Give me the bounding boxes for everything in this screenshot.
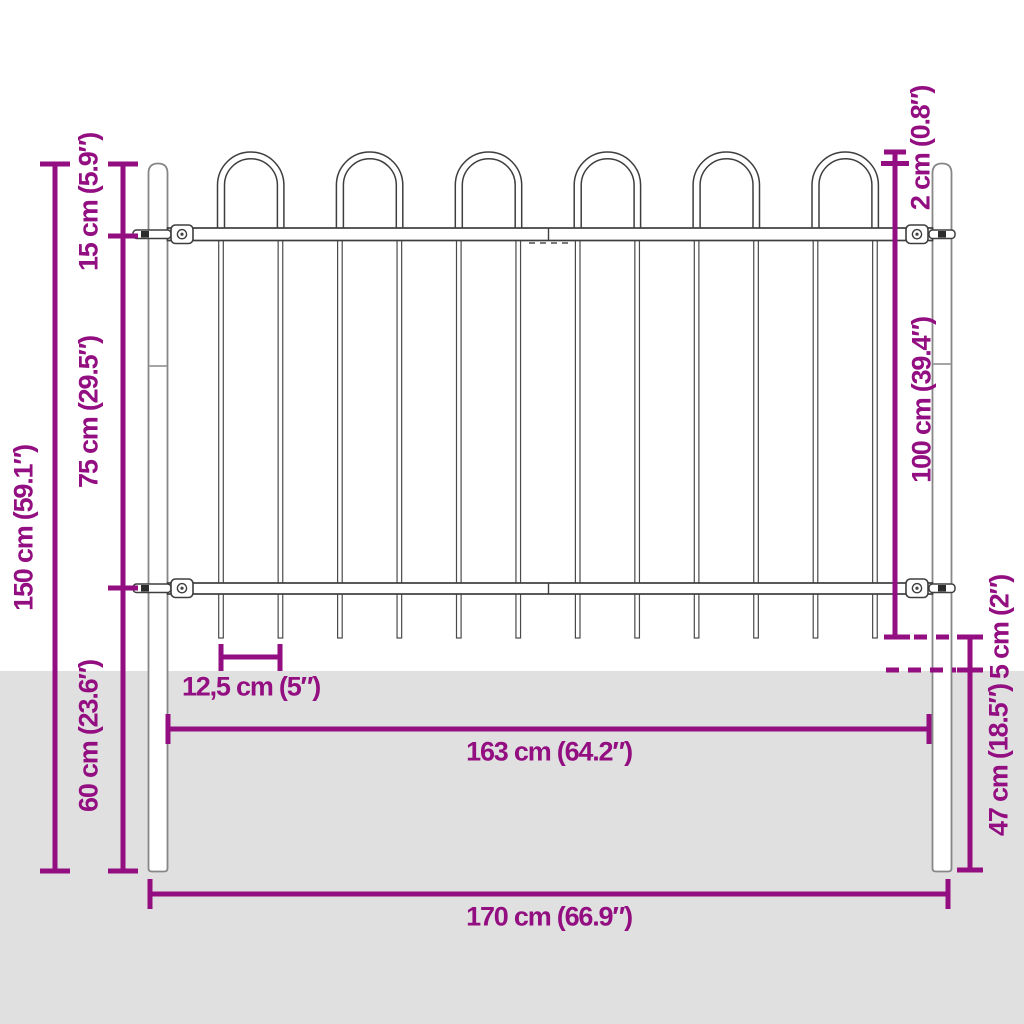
hoop-tops xyxy=(218,152,879,229)
dim-label-hoop-section: 15 cm (5.9″) xyxy=(76,133,103,271)
fence-dimension-diagram: 150 cm (59.1″) 15 cm (5.9″) 75 cm (29.5″… xyxy=(0,0,1024,1024)
dim-label-panel-width: 163 cm (64.2″) xyxy=(466,739,632,766)
right-post xyxy=(933,164,952,872)
dim-label-post-above-ground: 47 cm (18.5″) xyxy=(986,684,1013,836)
dim-label-total-height: 150 cm (59.1″) xyxy=(11,445,38,611)
dimension-lines xyxy=(40,152,983,909)
dim-label-lower-section: 60 cm (23.6″) xyxy=(76,660,103,812)
dim-label-total-width: 170 cm (66.9″) xyxy=(466,904,632,931)
top-rail xyxy=(168,228,933,243)
dim-label-hoop-above-post: 2 cm (0.8″) xyxy=(908,86,935,210)
left-post xyxy=(149,164,168,872)
dim-label-ground-clearance: 5 cm (2″) xyxy=(987,575,1014,679)
fence-drawing xyxy=(0,0,1024,1024)
dim-label-panel-height: 100 cm (39.4″) xyxy=(909,317,936,483)
bottom-rail xyxy=(168,583,933,594)
dim-label-bar-spacing: 12,5 cm (5″) xyxy=(182,674,320,701)
dim-label-rail-to-rail: 75 cm (29.5″) xyxy=(76,336,103,488)
vertical-bars xyxy=(219,240,878,638)
